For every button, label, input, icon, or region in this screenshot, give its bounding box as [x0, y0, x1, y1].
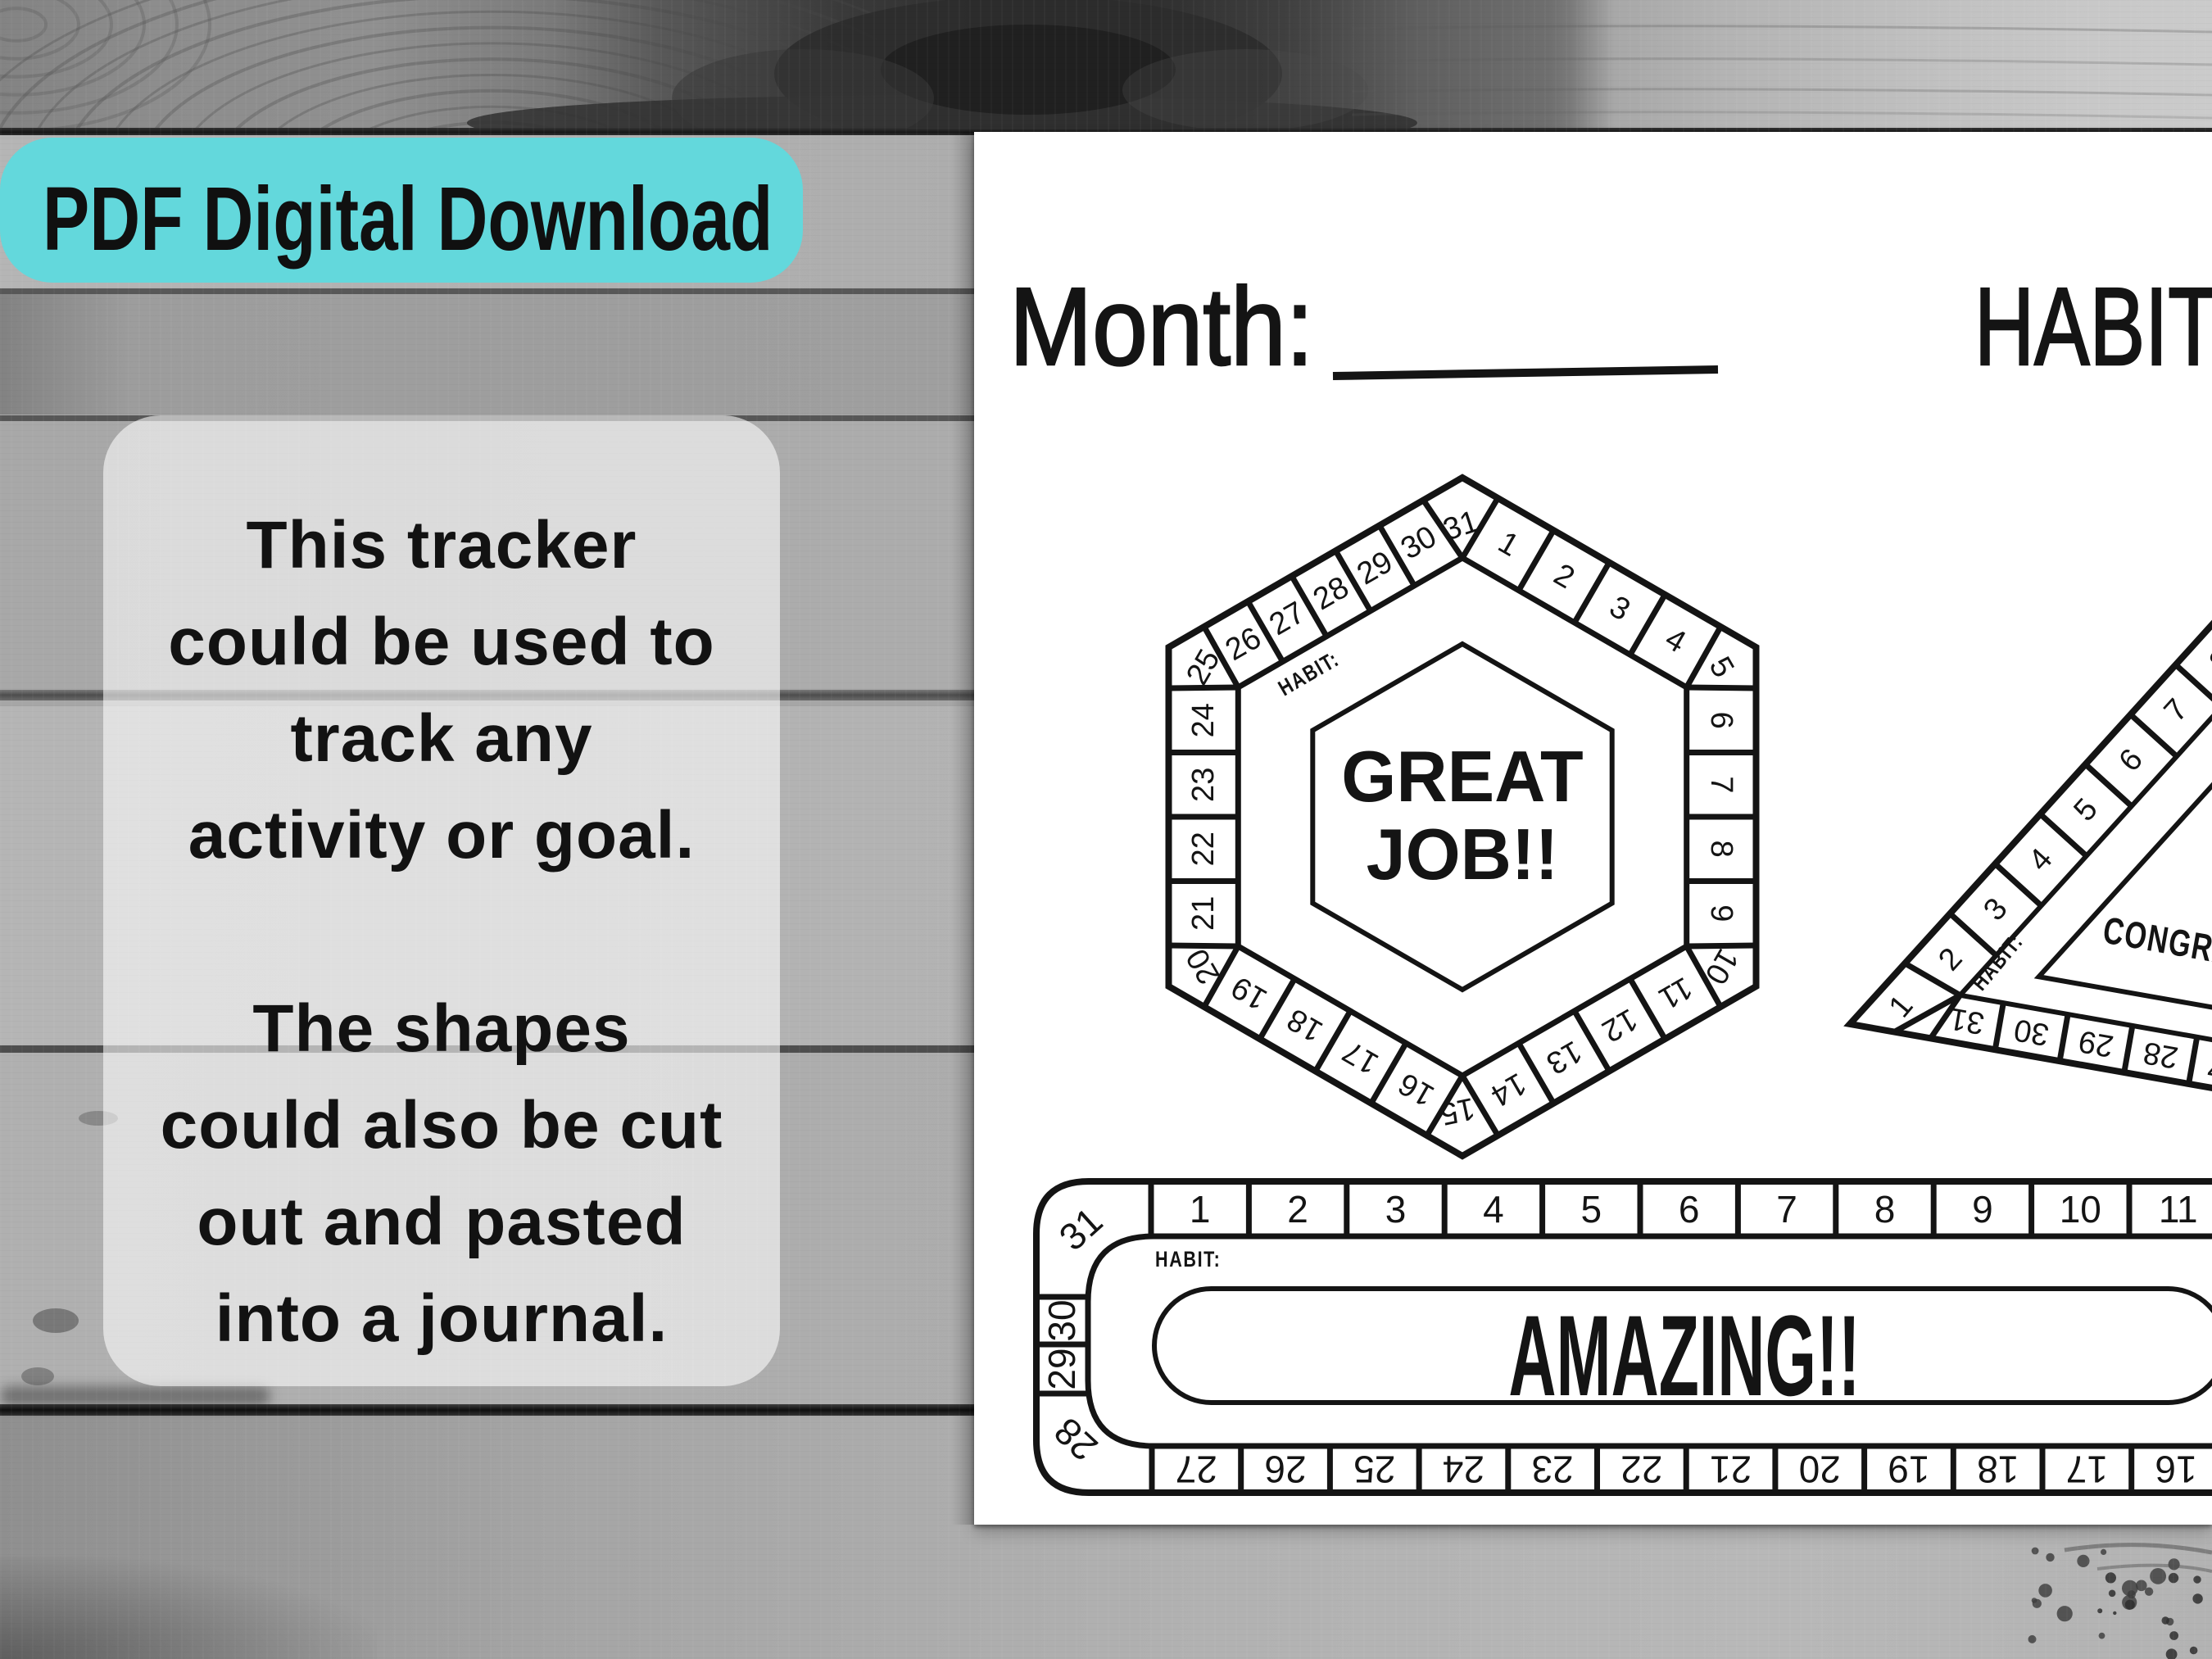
svg-text:9: 9: [1704, 904, 1738, 922]
svg-text:6: 6: [1704, 712, 1738, 729]
svg-text:19: 19: [1888, 1448, 1929, 1491]
svg-text:6: 6: [1679, 1188, 1700, 1231]
svg-text:30: 30: [2011, 1012, 2051, 1052]
svg-text:9: 9: [1972, 1188, 1993, 1231]
svg-text:24: 24: [1443, 1448, 1484, 1491]
svg-text:3: 3: [1385, 1188, 1407, 1231]
svg-text:Month:: Month:: [1009, 265, 1313, 388]
svg-text:8: 8: [1704, 841, 1738, 858]
svg-text:25: 25: [1353, 1448, 1395, 1491]
svg-text:7: 7: [1704, 776, 1738, 793]
svg-text:26: 26: [1264, 1448, 1306, 1491]
svg-text:4: 4: [1483, 1188, 1504, 1231]
svg-text:16: 16: [2155, 1448, 2196, 1491]
svg-text:10: 10: [2060, 1188, 2101, 1231]
svg-text:2: 2: [1287, 1188, 1308, 1231]
svg-text:23: 23: [1532, 1448, 1574, 1491]
svg-text:15: 15: [1437, 1090, 1478, 1131]
svg-text:HABIT TRACKER: HABIT TRACKER: [1974, 265, 2212, 388]
svg-text:8: 8: [1874, 1188, 1896, 1231]
svg-text:1: 1: [1190, 1188, 1211, 1231]
svg-text:22: 22: [1620, 1448, 1662, 1491]
svg-text:AMAZING!!: AMAZING!!: [1508, 1293, 1860, 1421]
svg-text:HABIT:: HABIT:: [1155, 1248, 1221, 1272]
svg-text:27: 27: [1176, 1448, 1217, 1491]
svg-text:31: 31: [1947, 1000, 1987, 1040]
svg-text:24: 24: [1186, 703, 1221, 737]
svg-text:23: 23: [1186, 768, 1221, 802]
svg-text:GREAT: GREAT: [1341, 737, 1583, 817]
svg-text:28: 28: [2141, 1035, 2181, 1075]
svg-text:30: 30: [1040, 1299, 1083, 1341]
svg-text:JOB!!: JOB!!: [1367, 814, 1559, 895]
svg-text:5: 5: [1581, 1188, 1602, 1231]
svg-text:17: 17: [2066, 1448, 2108, 1491]
svg-text:11: 11: [2159, 1188, 2198, 1231]
svg-text:20: 20: [1799, 1448, 1841, 1491]
svg-text:21: 21: [1186, 896, 1221, 931]
svg-text:29: 29: [1040, 1348, 1083, 1389]
svg-text:21: 21: [1710, 1448, 1752, 1491]
svg-text:18: 18: [1977, 1448, 2019, 1491]
svg-text:29: 29: [2076, 1023, 2116, 1063]
svg-text:22: 22: [1186, 832, 1221, 866]
svg-text:7: 7: [1776, 1188, 1797, 1231]
